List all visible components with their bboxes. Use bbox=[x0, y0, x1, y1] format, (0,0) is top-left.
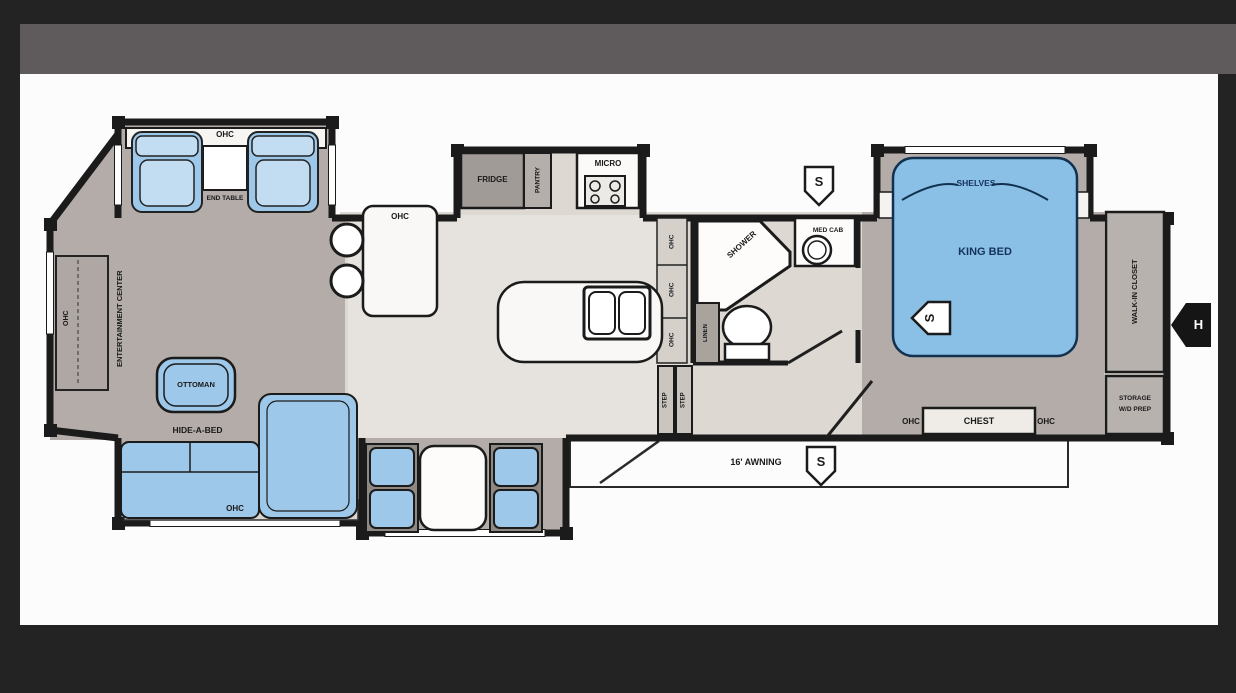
bar-stool bbox=[331, 224, 363, 256]
toilet bbox=[723, 306, 771, 360]
range-burners-icon bbox=[585, 176, 625, 206]
lav-sink bbox=[803, 236, 831, 264]
chaise-lounge bbox=[259, 394, 357, 518]
end-table bbox=[203, 146, 247, 190]
dinette-table bbox=[420, 446, 486, 530]
ottoman bbox=[157, 358, 235, 412]
fridge bbox=[461, 153, 524, 208]
hide-a-bed-sofa bbox=[121, 442, 259, 518]
pantry bbox=[524, 153, 551, 208]
linen-cabinet bbox=[695, 303, 719, 363]
front-window bbox=[47, 252, 54, 334]
entry-step bbox=[676, 366, 692, 434]
bar-counter bbox=[363, 206, 437, 316]
chest bbox=[923, 408, 1035, 434]
water-heater-icon bbox=[1171, 303, 1211, 347]
lounge-window-right bbox=[329, 145, 336, 205]
entertainment-center bbox=[56, 256, 108, 390]
double-sink bbox=[584, 287, 650, 339]
dinette bbox=[366, 444, 542, 532]
bar-stool bbox=[331, 265, 363, 297]
bedroom-window bbox=[905, 147, 1065, 154]
entry-door-swing bbox=[600, 441, 659, 483]
recliner-left bbox=[132, 132, 202, 212]
screenshot-stage: OHC END TABLE OHC ENTERTAINMENT CENTER O… bbox=[0, 0, 1236, 693]
floorplan-drawing bbox=[0, 0, 1236, 693]
lounge-window-left bbox=[115, 145, 122, 205]
recliner-right bbox=[248, 132, 318, 212]
speaker-icon bbox=[805, 167, 833, 205]
speaker-icon bbox=[807, 447, 835, 485]
entry-step bbox=[658, 366, 674, 434]
storage-wd-prep bbox=[1106, 376, 1164, 434]
walk-in-closet bbox=[1106, 212, 1164, 372]
